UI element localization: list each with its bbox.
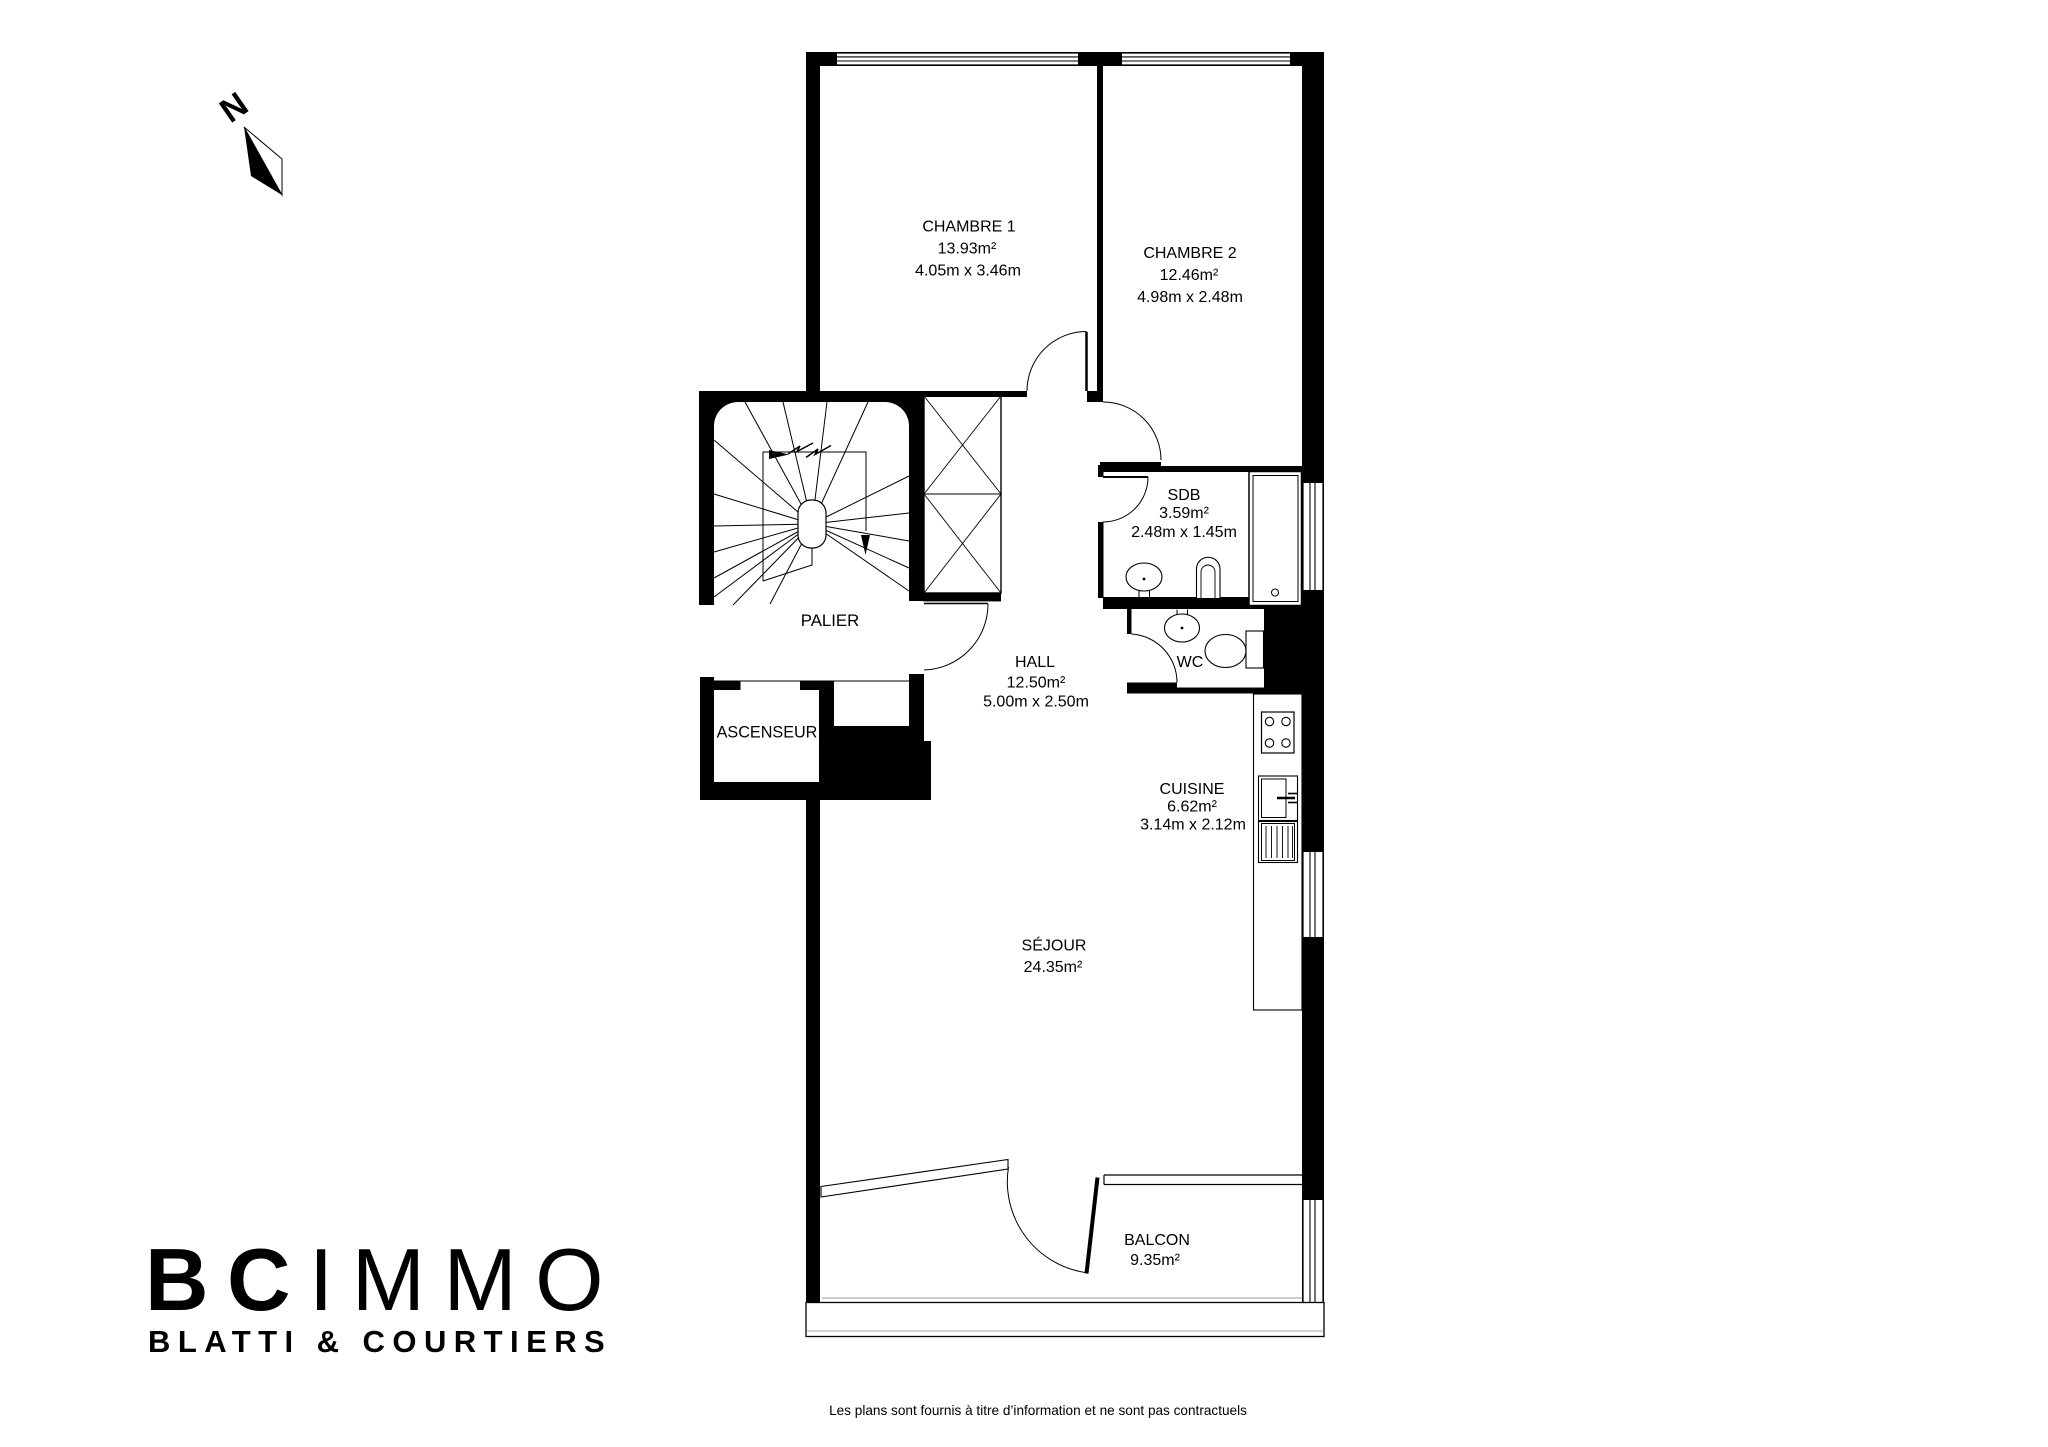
svg-text:6.62m²: 6.62m²: [1167, 799, 1217, 816]
svg-text:SÉJOUR: SÉJOUR: [1022, 936, 1087, 955]
svg-text:3.59m²: 3.59m²: [1159, 505, 1209, 522]
svg-text:BCIMMO: BCIMMO: [145, 1230, 622, 1329]
svg-text:5.00m x 2.50m: 5.00m x 2.50m: [983, 694, 1089, 711]
svg-text:CHAMBRE 1: CHAMBRE 1: [922, 219, 1015, 236]
svg-text:PALIER: PALIER: [801, 611, 859, 630]
svg-text:HALL: HALL: [1015, 654, 1055, 671]
svg-text:ASCENSEUR: ASCENSEUR: [717, 724, 818, 742]
svg-text:13.93m²: 13.93m²: [938, 241, 997, 258]
svg-text:24.35m²: 24.35m²: [1024, 959, 1083, 976]
svg-text:4.05m x 3.46m: 4.05m x 3.46m: [915, 263, 1021, 280]
svg-text:CHAMBRE 2: CHAMBRE 2: [1143, 245, 1236, 262]
svg-text:SDB: SDB: [1168, 487, 1201, 504]
svg-text:BALCON: BALCON: [1124, 1232, 1190, 1249]
svg-text:CUISINE: CUISINE: [1160, 781, 1225, 798]
svg-text:BLATTI & COURTIERS: BLATTI & COURTIERS: [148, 1324, 612, 1359]
svg-text:Les plans sont fournis à titre: Les plans sont fournis à titre d’informa…: [829, 1403, 1247, 1418]
svg-text:3.14m x 2.12m: 3.14m x 2.12m: [1140, 817, 1246, 834]
svg-text:12.46m²: 12.46m²: [1160, 267, 1219, 284]
svg-text:9.35m²: 9.35m²: [1130, 1252, 1180, 1269]
svg-text:4.98m x 2.48m: 4.98m x 2.48m: [1137, 289, 1243, 306]
svg-text:2.48m x 1.45m: 2.48m x 1.45m: [1131, 524, 1237, 541]
svg-text:12.50m²: 12.50m²: [1007, 675, 1066, 692]
svg-text:WC: WC: [1177, 654, 1204, 671]
